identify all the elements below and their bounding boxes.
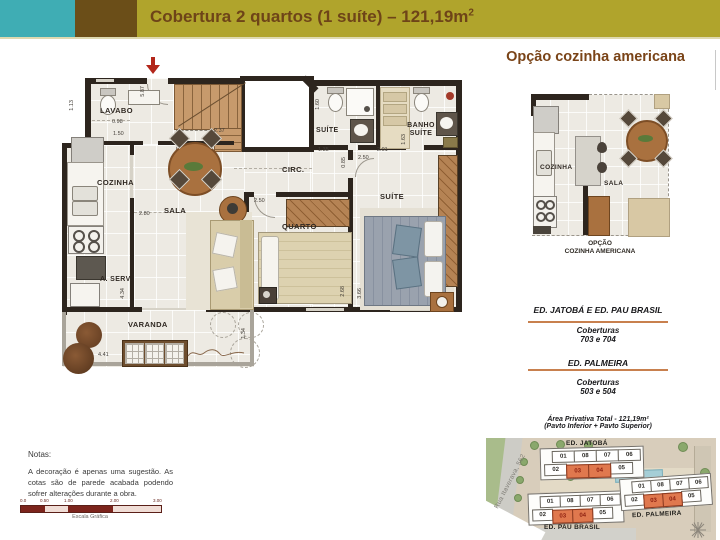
- room-label-suite: SUÍTE: [380, 192, 404, 201]
- scale-segment: [45, 506, 68, 512]
- dimension: 4.34: [120, 288, 126, 299]
- wall: [276, 192, 352, 197]
- kitchen-sink: [72, 186, 98, 201]
- dimension: 2.37: [214, 128, 225, 134]
- scale-tick: 3.00: [153, 498, 162, 503]
- divider: [528, 321, 668, 323]
- stair-void: [240, 76, 314, 152]
- building-title: ED. PALMEIRA: [528, 358, 668, 368]
- fridge: [71, 137, 104, 164]
- dimension: 2.50: [254, 198, 265, 204]
- option-room-label-sala: SALA: [604, 180, 623, 187]
- entry-arrow-head-icon: [146, 65, 160, 74]
- burner: [88, 241, 100, 253]
- toilet: [328, 93, 343, 112]
- notes-title: Notas:: [28, 450, 178, 459]
- unit-numbers: 703 e 704: [528, 335, 668, 344]
- scale-segment: [68, 506, 113, 512]
- toilet: [414, 93, 429, 112]
- info-panel: ED. JATOBÁ E ED. PAU BRASIL Coberturas 7…: [528, 305, 668, 430]
- dimension: 1.35: [318, 147, 329, 153]
- wall: [312, 80, 462, 86]
- room-label-aserv: A. SERV.: [100, 276, 132, 283]
- wall: [85, 78, 147, 84]
- unit-row: 02 03 04 05: [544, 462, 640, 478]
- room-label-circ: CIRC.: [282, 165, 304, 174]
- dimension: 2.01: [377, 147, 388, 153]
- option-heading: Opção cozinha americana: [470, 49, 685, 65]
- shower-head: [364, 106, 370, 112]
- bench-cushion: [145, 343, 164, 364]
- suite-side-table-lamp: [436, 296, 448, 308]
- unit-cell: 05: [592, 507, 613, 520]
- unit-cell: 05: [610, 462, 633, 475]
- dimension: 4.41: [98, 352, 109, 358]
- bench-cushion: [125, 343, 144, 364]
- window: [306, 308, 344, 311]
- projection-line: [92, 120, 130, 121]
- floor-plan-brochure: Cobertura 2 quartos (1 suíte) – 121,19m2…: [0, 0, 720, 540]
- coberturas-label: Coberturas: [528, 378, 668, 387]
- unit-cell-highlighted: 03: [566, 464, 589, 479]
- burner: [545, 212, 555, 222]
- tree-icon: [530, 441, 539, 450]
- burner: [545, 200, 555, 210]
- compass-icon: [690, 522, 706, 538]
- coberturas-label: Coberturas: [528, 326, 668, 335]
- dimension: 3.66: [357, 288, 363, 299]
- pillow: [212, 232, 238, 258]
- dimension: 1.13: [69, 100, 75, 111]
- laundry-tank: [70, 283, 100, 307]
- armchair: [654, 94, 670, 109]
- signature: [186, 346, 246, 360]
- option-caption-line1: OPÇÃO: [530, 240, 670, 248]
- table-centerpiece: [184, 162, 203, 171]
- suite-cushion: [392, 256, 422, 289]
- unit-cell: 01: [631, 480, 652, 493]
- room-label-cozinha: COZINHA: [97, 178, 134, 187]
- option-plan: COZINHA SALA OPÇÃO COZINHA AMERICANA: [525, 88, 675, 258]
- sofa: [628, 198, 670, 237]
- notes: Notas: A decoração é apenas uma sugestão…: [28, 450, 178, 500]
- unit-cell: 07: [669, 477, 690, 490]
- scale-segment: [21, 506, 45, 512]
- entry-arrow-icon: [151, 57, 155, 65]
- room-label-sala: SALA: [164, 206, 186, 215]
- dimension: 2.80: [139, 211, 150, 217]
- room-label-lavabo: LAVABO: [100, 106, 133, 115]
- unit-cell: 06: [600, 493, 621, 506]
- unit-cell: 07: [580, 494, 601, 507]
- stool: [597, 162, 607, 173]
- pillow: [212, 266, 237, 291]
- tree-icon: [516, 476, 524, 484]
- scale-segment: [113, 506, 161, 512]
- unit-cell: 07: [596, 449, 619, 462]
- planter-outline: [210, 312, 236, 338]
- building-label-pau-brasil: ED. PAU BRASIL: [544, 524, 600, 531]
- scale-tick: 0.50: [40, 498, 49, 503]
- scale-tick: 1.00: [64, 498, 73, 503]
- unit-cell-highlighted: 03: [643, 493, 664, 508]
- room-label-varanda: VARANDA: [128, 320, 168, 329]
- sofa-back: [240, 220, 252, 308]
- building-pau-brasil: 01 08 07 06 02 03 04 05: [527, 490, 624, 525]
- scale-tick: 0.0: [20, 498, 26, 503]
- kitchen-sink: [72, 201, 98, 216]
- burner: [73, 241, 85, 253]
- bench-cushion: [165, 343, 184, 364]
- wall: [531, 94, 589, 100]
- wall: [130, 141, 134, 155]
- suite-cushion: [392, 224, 422, 257]
- unit-cell: 01: [552, 450, 575, 463]
- dimension: 1.50: [113, 131, 124, 137]
- unit-numbers: 503 e 504: [528, 387, 668, 396]
- building-palmeira: 01 08 07 06 02 03 04 05: [619, 473, 713, 511]
- wall: [348, 150, 353, 160]
- wall: [85, 78, 91, 146]
- right-edge-line: [715, 50, 716, 90]
- notes-body: A decoração é apenas uma sugestão. As co…: [28, 467, 173, 500]
- kitchen-sink: [536, 150, 552, 176]
- floor-plan: LAVABO COZINHA SALA A. SERV. VARANDA CIR…: [0, 0, 500, 420]
- option-room-label-cozinha: COZINHA: [540, 164, 572, 171]
- closet-shelf: [383, 104, 407, 114]
- scale-tick: 2.00: [110, 498, 119, 503]
- scale-caption: Escala Gráfica: [20, 514, 160, 520]
- dimension: 2.68: [340, 286, 346, 297]
- dimension: 2.50: [358, 155, 369, 161]
- building-group-title: ED. JATOBÁ E ED. PAU BRASIL: [528, 305, 668, 315]
- unit-cell: 01: [540, 496, 561, 509]
- unit-cell: 02: [624, 494, 645, 507]
- area-total: Área Privativa Total - 121,19m²: [528, 416, 668, 423]
- fridge: [533, 106, 559, 134]
- table-centerpiece: [638, 135, 653, 142]
- dimension: 1.34: [241, 328, 247, 339]
- unit-cell: 02: [544, 464, 567, 477]
- area-detail: (Pavto Inferior + Pavto Superior): [528, 423, 668, 430]
- wall: [168, 78, 244, 84]
- option-caption-line2: COZINHA AMERICANA: [530, 248, 670, 256]
- unit-cell-highlighted: 04: [572, 508, 593, 523]
- unit-cell: 08: [650, 479, 671, 492]
- room-label-suite-bath: SUÍTE: [316, 127, 339, 134]
- unit-cell: 06: [688, 476, 709, 489]
- option-caption: OPÇÃO COZINHA AMERICANA: [530, 240, 670, 257]
- dimension: 0.85: [341, 157, 347, 168]
- wall: [62, 307, 142, 312]
- unit-cell-highlighted: 04: [662, 492, 683, 507]
- tree-icon: [514, 494, 522, 502]
- dimension: 1.63: [401, 134, 407, 145]
- dimension: 5.87: [140, 86, 146, 97]
- vanity-sink: [354, 124, 368, 136]
- vanity-sink: [440, 117, 453, 129]
- bath-bench: [443, 137, 458, 148]
- window: [96, 79, 114, 82]
- shower: [346, 88, 374, 116]
- lamp: [227, 203, 238, 214]
- stool: [597, 142, 607, 153]
- closet-shelf: [383, 92, 407, 102]
- unit-cell: 02: [532, 509, 553, 522]
- wood-cabinet: [588, 196, 610, 236]
- unit-cell: 08: [560, 495, 581, 508]
- tree-icon: [678, 442, 688, 452]
- quarto-side-table-lamp: [263, 291, 270, 298]
- dimension: 0.98: [112, 119, 123, 125]
- site-plan: Rua Itaverava, 562 ED. JATOBÁ 01 08 07 0…: [486, 438, 716, 540]
- wall: [130, 198, 134, 310]
- dimension: 1.60: [315, 99, 321, 110]
- suite-pillow: [424, 221, 443, 257]
- bath-accessory: [446, 92, 454, 100]
- plant: [63, 343, 94, 374]
- unit-cell: 08: [574, 450, 597, 463]
- unit-cell-highlighted: 03: [552, 509, 573, 524]
- kitchen-pass: [130, 155, 133, 198]
- building-jatoba: 01 08 07 06 02 03 04 05: [540, 446, 645, 481]
- divider: [528, 369, 668, 371]
- unit-cell: 06: [618, 449, 641, 462]
- unit-cell: 05: [681, 490, 702, 503]
- scale-segments: [20, 505, 162, 513]
- room-label-quarto: QUARTO: [282, 222, 317, 231]
- cabinet-base: [533, 226, 551, 234]
- unit-cell-highlighted: 04: [588, 464, 611, 479]
- unit-row: 02 03 04 05: [532, 506, 620, 522]
- room-label-banho-suite: BANHO SUÍTE: [404, 122, 438, 138]
